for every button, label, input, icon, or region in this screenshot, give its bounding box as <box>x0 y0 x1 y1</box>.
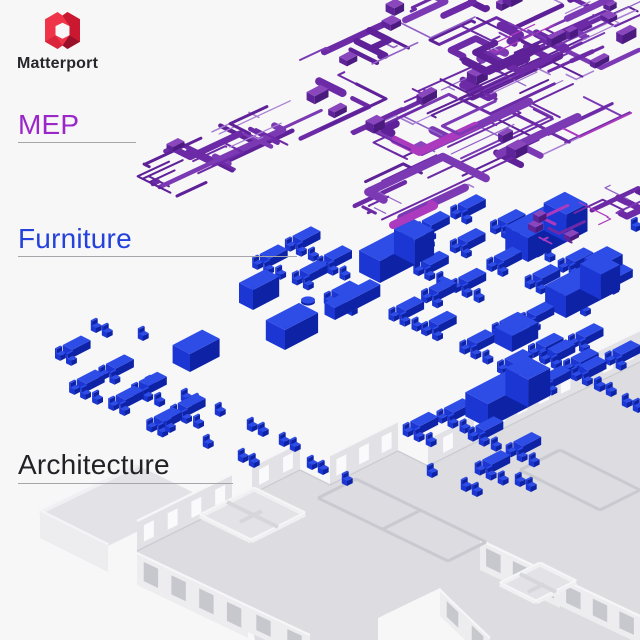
layer-label-architecture-text: Architecture <box>18 449 170 480</box>
layer-label-furniture: Furniture <box>18 225 132 253</box>
matterport-wordmark: Matterport <box>17 55 137 73</box>
architecture-leader-line <box>18 483 233 484</box>
layer-label-furniture-text: Furniture <box>18 223 132 254</box>
exploded-view-hero: Matterport MEP Furniture Architecture <box>0 0 640 640</box>
matterport-logo-icon <box>45 12 80 49</box>
mep-leader-line <box>18 142 136 143</box>
mep-layer-graphic <box>138 0 640 244</box>
layer-label-mep: MEP <box>18 111 79 139</box>
matterport-logo[interactable]: Matterport <box>17 12 137 73</box>
furniture-leader-line <box>18 256 297 257</box>
layer-label-architecture: Architecture <box>18 451 170 479</box>
exploded-building-graphic <box>0 0 640 640</box>
layer-label-mep-text: MEP <box>18 109 79 140</box>
